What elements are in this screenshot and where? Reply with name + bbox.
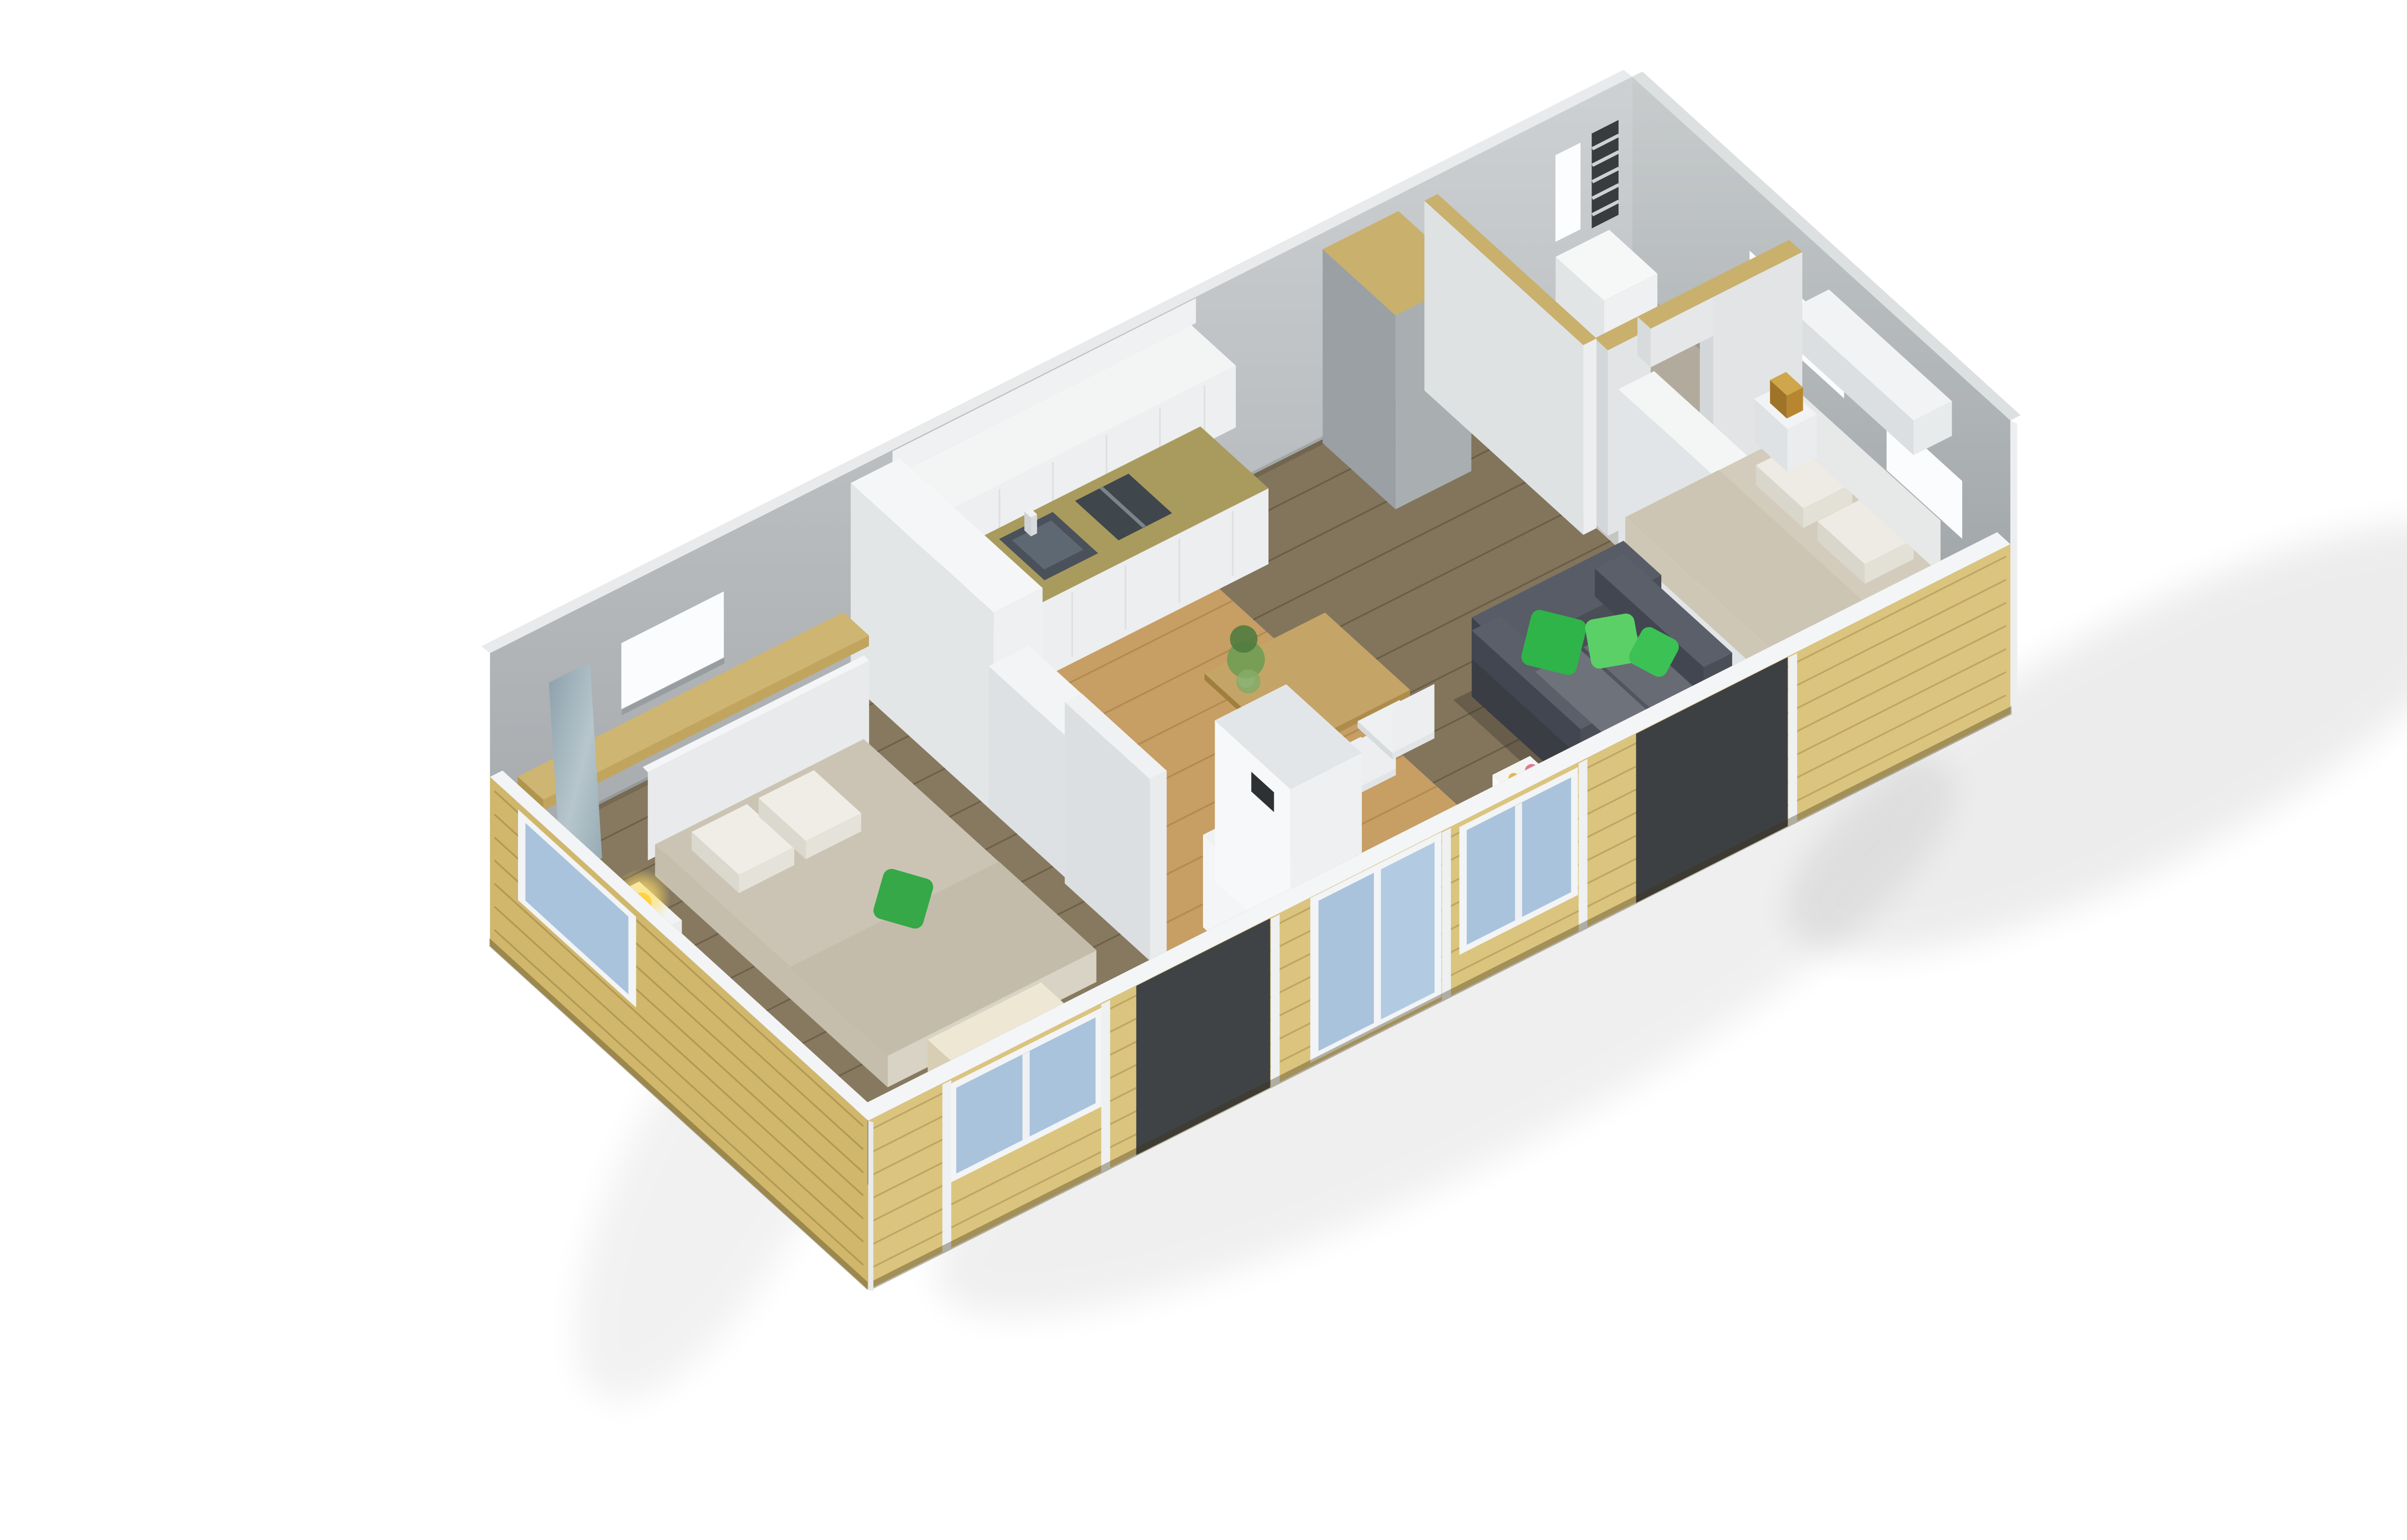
front-post-6 xyxy=(1788,653,1798,827)
front-post-5 xyxy=(1579,759,1587,933)
floor-plan-3d-render xyxy=(0,0,2407,1540)
front-window-2-mullion xyxy=(1515,803,1522,921)
partition-bedroom-left-front xyxy=(1150,770,1167,961)
partition-bathroom-front xyxy=(1583,338,1596,535)
bathroom-wall-front-a-side xyxy=(1595,338,1608,536)
floor-plan-page xyxy=(0,0,2407,1540)
front-post-3 xyxy=(1271,914,1280,1088)
front-post-1 xyxy=(942,1080,951,1254)
front-window-1-mullion xyxy=(1022,1051,1030,1141)
plant-foliage-3 xyxy=(1236,669,1260,693)
bathroom-mirror xyxy=(1555,142,1580,242)
kitchen-faucet-front xyxy=(1031,514,1037,537)
corner-post xyxy=(868,1121,874,1292)
front-post-2 xyxy=(1101,1000,1111,1174)
front-door-glass-2 xyxy=(1381,842,1435,1019)
plant-foliage-2 xyxy=(1230,625,1257,653)
front-door-glass-1 xyxy=(1319,873,1374,1051)
right-wall-corner-edge xyxy=(2010,421,2017,713)
front-post-4 xyxy=(1442,828,1451,1001)
